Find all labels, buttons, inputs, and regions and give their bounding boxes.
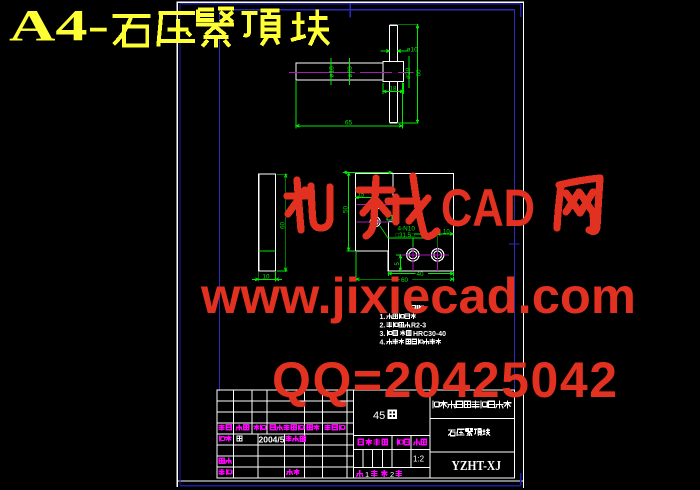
svg-text:YZHT-XJ: YZHT-XJ: [452, 458, 502, 473]
svg-text:2004/5: 2004/5: [259, 435, 285, 445]
svg-text:60: 60: [280, 221, 287, 229]
svg-text:HRC30-40: HRC30-40: [413, 331, 446, 338]
svg-text:4-N10: 4-N10: [398, 225, 416, 232]
svg-text:3.: 3.: [380, 331, 386, 338]
svg-text:4.: 4.: [380, 339, 386, 346]
svg-text:18: 18: [390, 86, 397, 93]
svg-text:□31.5□: □31.5□: [396, 233, 415, 239]
svg-text:ø20: ø20: [405, 67, 412, 79]
svg-text:ø10: ø10: [407, 47, 419, 54]
svg-text:A4-: A4-: [9, 1, 109, 50]
svg-text:1:2: 1:2: [413, 455, 425, 464]
svg-text:45: 45: [373, 410, 385, 422]
svg-text:50: 50: [342, 205, 349, 213]
svg-text:www.jixiecad.com: www.jixiecad.com: [200, 268, 636, 324]
svg-text:ø18: ø18: [329, 66, 336, 78]
svg-text:60: 60: [416, 69, 423, 77]
svg-text:CAD: CAD: [441, 179, 535, 238]
svg-text:2: 2: [390, 470, 394, 479]
svg-text:1: 1: [365, 470, 369, 479]
svg-text:ø20: ø20: [347, 66, 354, 78]
svg-text:QQ=20425042: QQ=20425042: [272, 352, 617, 408]
svg-text:65: 65: [345, 120, 353, 127]
